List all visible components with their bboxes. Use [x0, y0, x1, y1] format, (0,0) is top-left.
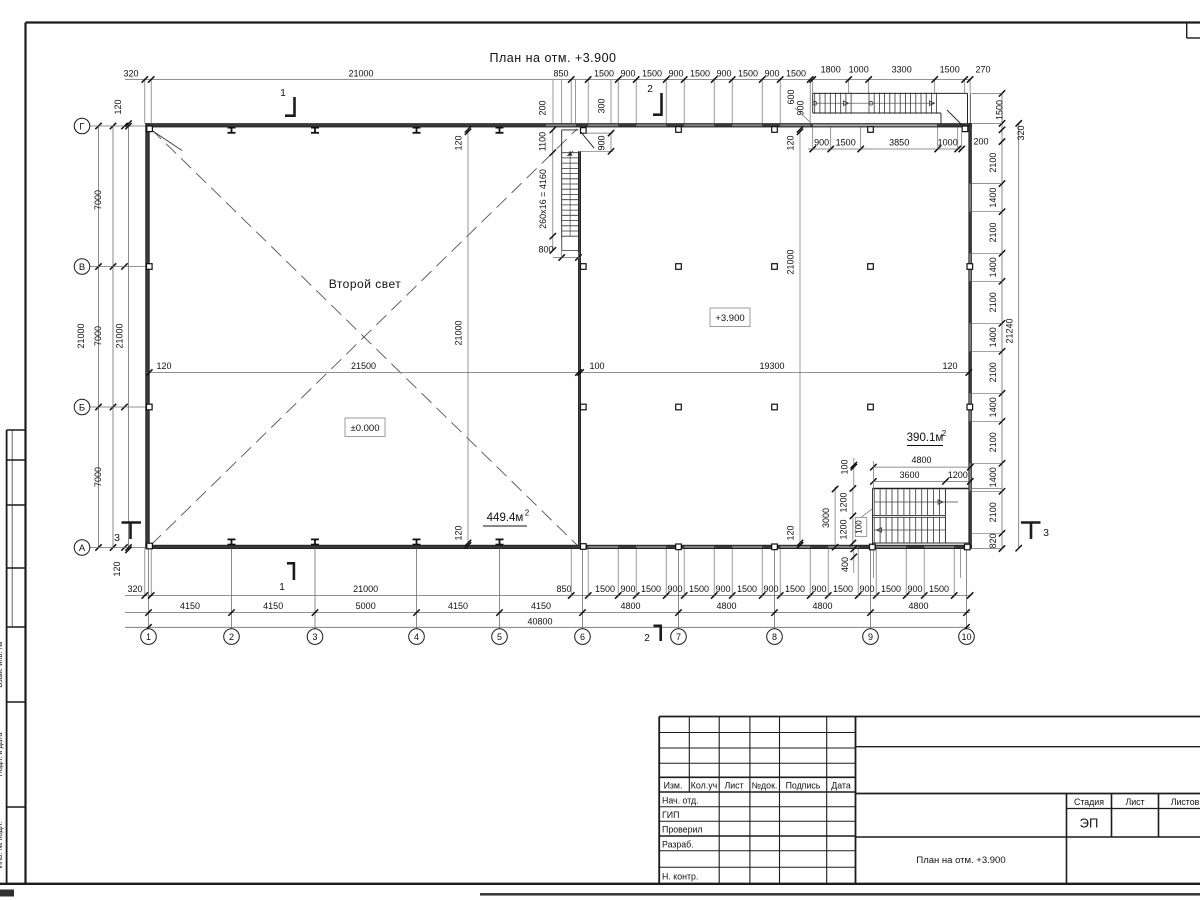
- svg-text:2100: 2100: [988, 292, 998, 312]
- svg-text:320: 320: [127, 584, 142, 594]
- svg-text:1500: 1500: [595, 584, 615, 594]
- svg-text:1000: 1000: [849, 65, 869, 75]
- svg-text:1500: 1500: [785, 584, 805, 594]
- svg-text:1400: 1400: [988, 397, 998, 417]
- svg-text:1500: 1500: [689, 584, 709, 594]
- svg-text:6: 6: [580, 632, 585, 642]
- svg-text:1500: 1500: [690, 69, 710, 79]
- svg-text:5000: 5000: [356, 601, 376, 611]
- svg-text:900: 900: [715, 584, 730, 594]
- svg-text:4800: 4800: [716, 601, 736, 611]
- svg-text:Н. контр.: Н. контр.: [662, 871, 698, 881]
- svg-text:Проверил: Проверил: [662, 825, 703, 835]
- svg-text:900: 900: [814, 138, 829, 148]
- svg-text:19300: 19300: [759, 361, 784, 371]
- svg-text:1500: 1500: [929, 584, 949, 594]
- svg-text:900: 900: [764, 69, 779, 79]
- svg-text:120: 120: [454, 525, 464, 540]
- svg-text:Подпись: Подпись: [786, 781, 821, 791]
- svg-text:900: 900: [668, 69, 683, 79]
- svg-text:7000: 7000: [93, 190, 103, 210]
- svg-text:120: 120: [112, 561, 122, 576]
- svg-text:±0.000: ±0.000: [351, 423, 380, 434]
- svg-text:2100: 2100: [988, 432, 998, 452]
- svg-text:2: 2: [229, 632, 234, 642]
- svg-text:4150: 4150: [263, 601, 283, 611]
- svg-text:План на отм. +3.900: План на отм. +3.900: [916, 855, 1005, 866]
- svg-text:3: 3: [1043, 527, 1049, 539]
- svg-text:1400: 1400: [988, 188, 998, 208]
- svg-text:270: 270: [975, 65, 990, 75]
- svg-text:3: 3: [114, 532, 120, 544]
- svg-text:21500: 21500: [351, 361, 376, 371]
- svg-text:1400: 1400: [988, 467, 998, 487]
- svg-text:Взам. инв. №: Взам. инв. №: [0, 641, 4, 687]
- svg-text:2100: 2100: [988, 153, 998, 173]
- svg-text:1500: 1500: [995, 100, 1005, 120]
- svg-text:120: 120: [454, 135, 464, 150]
- svg-text:1500: 1500: [940, 65, 960, 75]
- svg-text:№док.: №док.: [752, 781, 778, 791]
- svg-text:120: 120: [942, 361, 957, 371]
- svg-text:Разраб.: Разраб.: [662, 839, 694, 849]
- svg-text:3850: 3850: [889, 138, 909, 148]
- svg-text:1500: 1500: [881, 584, 901, 594]
- svg-text:ГИП: ГИП: [662, 810, 679, 820]
- svg-text:800: 800: [538, 245, 553, 255]
- svg-text:21000: 21000: [786, 249, 796, 274]
- svg-text:40800: 40800: [527, 617, 552, 627]
- svg-text:ЭП: ЭП: [1080, 816, 1099, 831]
- svg-text:850: 850: [556, 584, 571, 594]
- svg-text:1100: 1100: [538, 132, 548, 151]
- svg-text:900: 900: [763, 584, 778, 594]
- svg-text:Подп. и дата: Подп. и дата: [0, 732, 4, 777]
- svg-text:Стадия: Стадия: [1074, 797, 1104, 807]
- svg-text:21000: 21000: [115, 323, 125, 348]
- svg-text:1500: 1500: [836, 138, 856, 148]
- svg-text:Кол.уч: Кол.уч: [691, 781, 717, 791]
- svg-text:9: 9: [868, 632, 873, 642]
- svg-text:Б: Б: [79, 402, 85, 413]
- svg-text:21000: 21000: [454, 320, 464, 345]
- svg-text:Лист: Лист: [1125, 797, 1144, 807]
- svg-text:Инв. № подл.: Инв. № подл.: [0, 822, 4, 869]
- svg-text:1: 1: [280, 88, 286, 99]
- svg-text:4150: 4150: [531, 601, 551, 611]
- svg-text:390.1м: 390.1м: [907, 432, 944, 444]
- svg-text:900: 900: [716, 69, 731, 79]
- svg-text:1000: 1000: [938, 138, 958, 148]
- svg-text:900: 900: [811, 584, 826, 594]
- svg-text:+3.900: +3.900: [715, 313, 744, 324]
- svg-text:120: 120: [786, 135, 796, 150]
- svg-text:1500: 1500: [641, 584, 661, 594]
- svg-text:900: 900: [907, 584, 922, 594]
- svg-text:2: 2: [942, 429, 947, 438]
- svg-text:900: 900: [667, 584, 682, 594]
- svg-text:21240: 21240: [1005, 318, 1015, 343]
- svg-text:2: 2: [525, 509, 530, 518]
- svg-text:3: 3: [312, 632, 317, 642]
- svg-text:1200: 1200: [839, 519, 849, 539]
- svg-text:Изм.: Изм.: [664, 781, 683, 791]
- svg-text:900: 900: [620, 69, 635, 79]
- svg-text:300: 300: [597, 98, 607, 113]
- svg-text:2100: 2100: [988, 502, 998, 522]
- svg-text:1500: 1500: [786, 69, 806, 79]
- svg-text:2100: 2100: [988, 362, 998, 382]
- svg-text:4800: 4800: [911, 455, 931, 465]
- svg-text:400: 400: [840, 557, 850, 572]
- svg-text:1500: 1500: [738, 69, 758, 79]
- svg-text:1500: 1500: [642, 69, 662, 79]
- svg-text:120: 120: [786, 525, 796, 540]
- svg-text:1500: 1500: [737, 584, 757, 594]
- svg-text:4800: 4800: [908, 601, 928, 611]
- svg-text:4800: 4800: [812, 601, 832, 611]
- svg-text:План на отм. +3.900: План на отм. +3.900: [490, 51, 617, 65]
- svg-text:7: 7: [676, 632, 681, 642]
- svg-text:Дата: Дата: [831, 781, 851, 791]
- svg-text:1400: 1400: [988, 257, 998, 277]
- svg-text:4800: 4800: [620, 601, 640, 611]
- svg-text:100: 100: [854, 520, 863, 534]
- svg-text:200: 200: [538, 100, 548, 115]
- svg-text:820: 820: [988, 533, 998, 548]
- svg-text:120: 120: [156, 361, 171, 371]
- svg-text:200: 200: [973, 137, 988, 147]
- svg-text:2100: 2100: [988, 222, 998, 242]
- svg-text:1200: 1200: [839, 492, 849, 512]
- svg-text:1500: 1500: [594, 69, 614, 79]
- svg-text:120: 120: [113, 99, 123, 114]
- svg-text:Листов: Листов: [1171, 797, 1200, 807]
- svg-text:449.4м: 449.4м: [487, 512, 524, 524]
- svg-text:900: 900: [597, 135, 607, 150]
- svg-text:3300: 3300: [892, 65, 912, 75]
- svg-text:2: 2: [647, 84, 653, 95]
- svg-text:4: 4: [414, 632, 419, 642]
- svg-text:Второй свет: Второй свет: [329, 277, 402, 291]
- svg-text:600: 600: [786, 89, 796, 104]
- svg-text:260x16 = 4160: 260x16 = 4160: [538, 169, 548, 229]
- svg-text:7000: 7000: [93, 326, 103, 346]
- svg-text:100: 100: [840, 459, 850, 474]
- svg-text:1200: 1200: [948, 470, 968, 480]
- svg-text:1500: 1500: [833, 584, 853, 594]
- svg-text:100: 100: [589, 361, 604, 371]
- svg-text:Г: Г: [79, 121, 84, 132]
- svg-text:21000: 21000: [353, 584, 378, 594]
- svg-text:1: 1: [279, 582, 285, 593]
- svg-text:Лист: Лист: [724, 781, 743, 791]
- svg-text:21000: 21000: [76, 323, 86, 348]
- svg-text:3600: 3600: [899, 470, 919, 480]
- svg-text:2: 2: [644, 633, 650, 644]
- svg-text:7000: 7000: [93, 467, 103, 487]
- svg-text:1400: 1400: [988, 327, 998, 347]
- svg-text:900: 900: [620, 584, 635, 594]
- svg-text:А: А: [79, 543, 86, 554]
- svg-text:5: 5: [497, 632, 502, 642]
- svg-text:850: 850: [553, 69, 568, 79]
- svg-text:В: В: [79, 262, 85, 273]
- svg-text:3000: 3000: [821, 508, 831, 528]
- svg-text:Нач. отд.: Нач. отд.: [662, 796, 699, 806]
- svg-text:320: 320: [123, 69, 138, 79]
- svg-text:1: 1: [146, 632, 151, 642]
- svg-text:10: 10: [961, 632, 971, 642]
- svg-text:8: 8: [772, 632, 777, 642]
- svg-text:1800: 1800: [821, 65, 841, 75]
- svg-text:320: 320: [1016, 125, 1026, 140]
- svg-text:4150: 4150: [180, 601, 200, 611]
- svg-text:900: 900: [859, 584, 874, 594]
- svg-text:21000: 21000: [348, 69, 373, 79]
- svg-text:4150: 4150: [448, 601, 468, 611]
